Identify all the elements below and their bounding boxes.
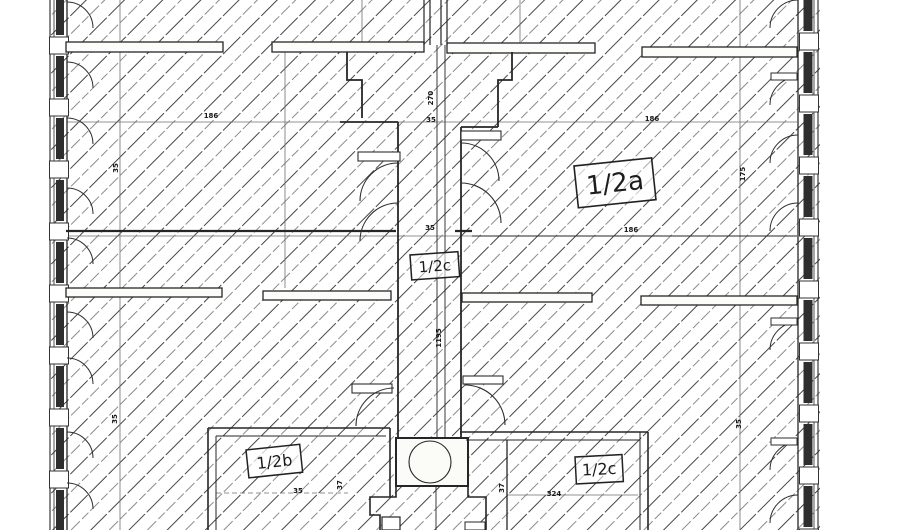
left-wall-windows (49, 0, 69, 530)
dimension-text: 270 (427, 91, 435, 106)
door-leaf (771, 438, 797, 445)
dimension-text: 37 (336, 480, 344, 490)
dimension-text: 35 (111, 414, 119, 424)
dimension-text: 35 (735, 419, 743, 429)
wall-bar (447, 43, 595, 53)
room-label-text: 1/2c (581, 459, 616, 480)
wall-bar (263, 291, 391, 300)
dimension-text: 37 (498, 483, 506, 493)
room-label-text: 1/2b (256, 450, 294, 473)
room-label-c: 1/2c (575, 455, 623, 484)
dimension-text: 186 (204, 112, 219, 120)
shaft-box (396, 438, 468, 486)
room-label-a: 1/2a (574, 158, 656, 208)
room-label-text: 1/2c (418, 256, 452, 276)
door-frame (382, 517, 400, 530)
door-leaf (358, 152, 400, 161)
door-leaf (771, 318, 797, 325)
dimension-text: 186 (624, 226, 639, 234)
dimension-text: 1195 (435, 328, 443, 348)
dimension-text: 35 (293, 487, 303, 495)
room-label-hall: 1/2c (410, 252, 460, 280)
door-leaf (461, 131, 501, 140)
dimension-text: 324 (547, 490, 562, 498)
floor-plan-page: 1/2a 1/2c 1/2b 1/2c 186 35 270 35 186 17… (0, 0, 900, 530)
door-frame (465, 522, 485, 530)
wall-bar (642, 47, 797, 57)
floor-plan-drawing: 1/2a 1/2c 1/2b 1/2c 186 35 270 35 186 17… (0, 0, 900, 530)
door-leaf (771, 73, 797, 80)
wall-bar (641, 296, 797, 305)
door-leaf (463, 376, 503, 384)
dimension-text: 35 (112, 163, 120, 173)
room-label-text: 1/2a (585, 166, 646, 202)
dimension-text: 35 (426, 116, 436, 124)
wall-bar (462, 293, 592, 302)
dimension-text: 175 (739, 167, 747, 182)
wall-bar (272, 42, 424, 52)
dimension-text: 186 (645, 115, 660, 123)
room-label-b: 1/2b (246, 444, 303, 477)
wall-bar (66, 42, 223, 52)
dimension-text: 35 (425, 224, 435, 232)
right-wall-windows (799, 0, 819, 530)
wall-bar (66, 288, 222, 297)
